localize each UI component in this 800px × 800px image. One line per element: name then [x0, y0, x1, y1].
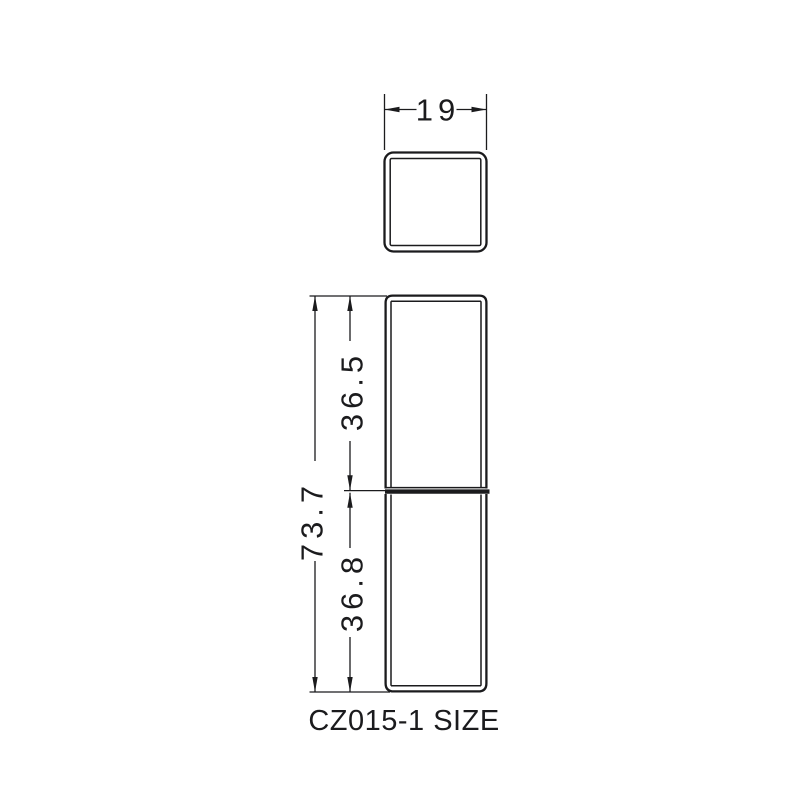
- drawing-canvas: 19 73.7: [0, 0, 800, 800]
- arrow-up-icon: [312, 296, 317, 311]
- arrow-down-icon: [347, 677, 352, 692]
- arrow-down-icon: [347, 475, 352, 490]
- cap-inner-wall: [391, 301, 481, 487]
- lower-height-value: 36.8: [335, 552, 370, 632]
- upper-height-value: 36.5: [335, 351, 370, 431]
- base-outline: [386, 494, 487, 691]
- top-view-inner-wall: [390, 159, 481, 246]
- lower-height-dimension: 36.8: [335, 493, 370, 692]
- width-dimension: 19: [385, 93, 487, 151]
- drawing-title: CZ015-1 SIZE: [308, 705, 499, 737]
- upper-height-dimension: 36.5: [335, 296, 370, 490]
- arrow-down-icon: [312, 677, 317, 692]
- total-height-dimension: 73.7: [295, 296, 330, 692]
- width-value: 19: [416, 93, 460, 128]
- arrow-up-icon: [347, 296, 352, 311]
- top-view: [385, 153, 487, 252]
- arrow-up-icon: [347, 493, 352, 508]
- base-inner-wall: [391, 495, 481, 686]
- front-view: [385, 296, 490, 692]
- cap-outline: [386, 296, 487, 489]
- top-view-outline: [385, 153, 487, 252]
- arrow-right-icon: [472, 107, 487, 112]
- total-height-value: 73.7: [295, 481, 330, 561]
- arrow-left-icon: [385, 107, 400, 112]
- dimension-drawing: 19 73.7: [0, 0, 800, 800]
